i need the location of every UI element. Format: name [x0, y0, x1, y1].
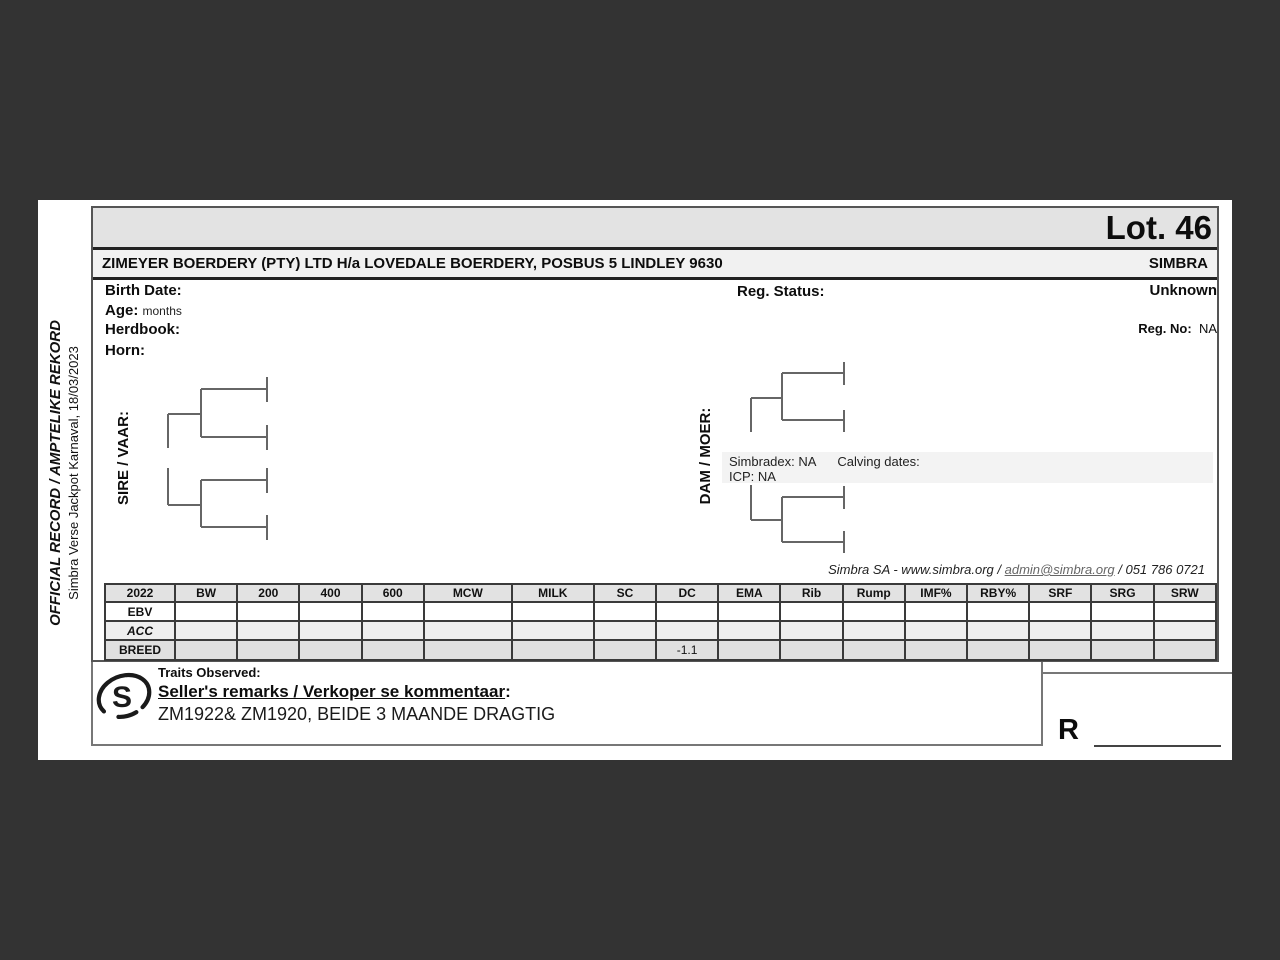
value-cell	[424, 621, 512, 640]
simbradex-row: Simbradex: NA Calving dates:	[729, 454, 1213, 469]
ebv-table-wrap: 2022BW200400600MCWMILKSCDCEMARibRumpIMF%…	[104, 583, 1217, 661]
value-cell	[362, 640, 424, 660]
value-cell	[594, 640, 656, 660]
calving-dates-label: Calving dates:	[837, 454, 919, 469]
document-sheet: OFFICIAL RECORD / AMPTELIKE REKORD Simbr…	[38, 200, 1232, 760]
value-cell	[780, 640, 842, 660]
logo-letter: S	[112, 681, 132, 714]
contact-prefix: Simbra SA - www.simbra.org /	[828, 562, 1005, 577]
ebv-table: 2022BW200400600MCWMILKSCDCEMARibRumpIMF%…	[104, 583, 1217, 661]
value-cell	[843, 640, 905, 660]
table-row-breed: BREED-1.1	[105, 640, 1216, 660]
value-cell	[299, 640, 361, 660]
col-header-200: 200	[237, 584, 299, 602]
value-cell	[237, 621, 299, 640]
col-header-400: 400	[299, 584, 361, 602]
col-header-BW: BW	[175, 584, 237, 602]
value-cell	[175, 621, 237, 640]
col-header-SC: SC	[594, 584, 656, 602]
col-header-EMA: EMA	[718, 584, 780, 602]
value-cell	[843, 621, 905, 640]
value-cell	[967, 621, 1029, 640]
price-blank-line	[1094, 745, 1221, 747]
sellers-remarks-text: ZM1922& ZM1920, BEIDE 3 MAANDE DRAGTIG	[158, 704, 555, 725]
value-cell	[780, 621, 842, 640]
col-header-SRW: SRW	[1154, 584, 1216, 602]
value-cell	[905, 640, 967, 660]
value-cell	[1154, 621, 1216, 640]
col-header-Rib: Rib	[780, 584, 842, 602]
value-cell	[362, 621, 424, 640]
lot-band: Lot. 46	[93, 208, 1217, 250]
value-cell	[237, 602, 299, 621]
value-cell	[1091, 640, 1153, 660]
value-cell	[718, 602, 780, 621]
currency-symbol: R	[1058, 714, 1079, 747]
value-cell	[175, 602, 237, 621]
value-cell	[967, 640, 1029, 660]
simbradex-value: Simbradex: NA	[729, 454, 816, 469]
value-cell	[594, 621, 656, 640]
col-header-IMF%: IMF%	[905, 584, 967, 602]
icp-value: ICP: NA	[729, 469, 1213, 484]
email-link: admin@simbra.org	[1005, 562, 1115, 577]
value-cell	[299, 621, 361, 640]
table-header-row: 2022BW200400600MCWMILKSCDCEMARibRumpIMF%…	[105, 584, 1216, 602]
value-cell	[1091, 602, 1153, 621]
value-cell	[512, 621, 594, 640]
value-cell	[424, 602, 512, 621]
value-cell	[905, 602, 967, 621]
official-record-title: OFFICIAL RECORD / AMPTELIKE REKORD	[46, 283, 65, 663]
table-row-acc: ACC	[105, 621, 1216, 640]
table-row-ebv: EBV	[105, 602, 1216, 621]
value-cell	[175, 640, 237, 660]
col-header-MCW: MCW	[424, 584, 512, 602]
value-cell	[656, 602, 718, 621]
value-cell	[1091, 621, 1153, 640]
col-header-DC: DC	[656, 584, 718, 602]
row-label: EBV	[105, 602, 175, 621]
value-cell	[362, 602, 424, 621]
value-cell	[424, 640, 512, 660]
value-cell	[1029, 602, 1091, 621]
value-cell	[512, 602, 594, 621]
society-contact-line: Simbra SA - www.simbra.org / admin@simbr…	[828, 562, 1205, 577]
col-header-SRF: SRF	[1029, 584, 1091, 602]
value-cell	[1029, 621, 1091, 640]
col-header-RBY%: RBY%	[967, 584, 1029, 602]
value-cell	[967, 602, 1029, 621]
value-cell	[718, 621, 780, 640]
contact-suffix: / 051 786 0721	[1115, 562, 1205, 577]
value-cell	[1154, 602, 1216, 621]
pedigree-tree-lines	[91, 280, 1219, 583]
row-label: ACC	[105, 621, 175, 640]
value-cell	[299, 602, 361, 621]
simbradex-band: Simbradex: NA Calving dates: ICP: NA	[722, 452, 1213, 483]
value-cell	[780, 602, 842, 621]
col-header-2022: 2022	[105, 584, 175, 602]
col-header-Rump: Rump	[843, 584, 905, 602]
value-cell	[905, 621, 967, 640]
col-header-SRG: SRG	[1091, 584, 1153, 602]
col-header-600: 600	[362, 584, 424, 602]
value-cell	[718, 640, 780, 660]
sidebar-vertical-text: OFFICIAL RECORD / AMPTELIKE REKORD Simbr…	[46, 283, 86, 663]
sellers-remarks-heading: Seller's remarks / Verkoper se kommentaa…	[158, 682, 511, 702]
simbra-s-logo: S	[93, 666, 155, 724]
owner-row: ZIMEYER BOERDERY (PTY) LTD H/a LOVEDALE …	[93, 250, 1217, 280]
row-label: BREED	[105, 640, 175, 660]
value-cell	[1154, 640, 1216, 660]
value-cell	[1029, 640, 1091, 660]
event-date-subtitle: Simbra Verse Jackpot Karnaval, 18/03/202…	[65, 283, 82, 663]
lot-number: Lot. 46	[1106, 209, 1212, 247]
value-cell	[656, 621, 718, 640]
sellers-remarks-underlined: Seller's remarks / Verkoper se kommentaa…	[158, 682, 505, 701]
value-cell: -1.1	[656, 640, 718, 660]
value-cell	[843, 602, 905, 621]
traits-observed-label: Traits Observed:	[158, 665, 261, 680]
screen-background: OFFICIAL RECORD / AMPTELIKE REKORD Simbr…	[0, 0, 1280, 960]
value-cell	[512, 640, 594, 660]
price-box-top-line	[1043, 672, 1232, 674]
value-cell	[594, 602, 656, 621]
breed-name: SIMBRA	[1149, 255, 1208, 272]
owner-name: ZIMEYER BOERDERY (PTY) LTD H/a LOVEDALE …	[102, 255, 723, 272]
col-header-MILK: MILK	[512, 584, 594, 602]
sellers-remarks-colon: :	[505, 682, 511, 701]
value-cell	[237, 640, 299, 660]
